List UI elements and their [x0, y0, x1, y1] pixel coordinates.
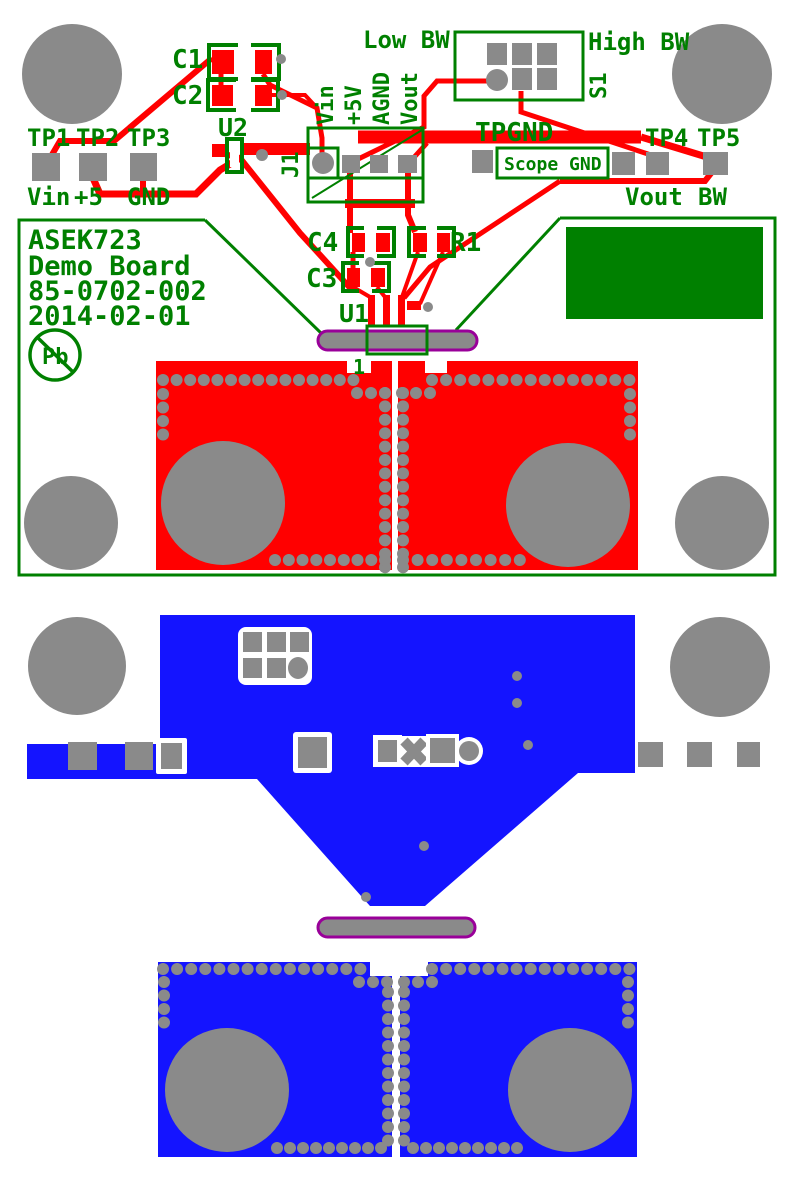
title-line4: 2014-02-01: [28, 301, 191, 332]
via-dot: [397, 534, 409, 546]
thermal-relief-pad: [399, 736, 429, 767]
via-dot: [398, 1013, 410, 1025]
via-dot: [539, 963, 551, 975]
via-dot: [362, 1142, 374, 1154]
via-dot: [398, 1067, 410, 1079]
pcb-layout-image: Scope GND: [0, 0, 795, 1185]
mount-hole-mid-left: [24, 476, 118, 570]
via-dot: [351, 387, 363, 399]
tp5-label: TP5: [697, 124, 740, 152]
via-dot: [482, 963, 494, 975]
via-dot: [497, 963, 509, 975]
via-dot: [609, 374, 621, 386]
via-dot: [157, 402, 169, 414]
via-dot: [426, 374, 438, 386]
via-dot: [283, 554, 295, 566]
via-dot: [624, 388, 636, 400]
via-dot: [312, 963, 324, 975]
pcb-drawing: Scope GND: [0, 0, 795, 1185]
u1-primary-slot: [318, 331, 477, 350]
via-dot: [382, 1094, 394, 1106]
j1-pad-3: [370, 155, 388, 173]
via-dot: [252, 374, 264, 386]
j1-label: J1: [279, 152, 304, 179]
via-dot: [185, 963, 197, 975]
vin-label: Vin: [27, 183, 70, 211]
via-dot: [379, 554, 391, 566]
via-dot: [323, 1142, 335, 1154]
via-dot: [397, 494, 409, 506]
via-dot: [623, 963, 635, 975]
via-dot: [459, 1142, 471, 1154]
via-dot: [397, 427, 409, 439]
via-dot: [213, 963, 225, 975]
via-dot: [354, 963, 366, 975]
bw-label: BW: [698, 183, 727, 211]
via-dot: [284, 963, 296, 975]
via-dot: [426, 963, 438, 975]
lead-free-pb-label: Pb: [42, 345, 69, 370]
component-u2: [212, 139, 242, 172]
c1-label: C1: [172, 45, 203, 75]
via-dot: [239, 374, 251, 386]
j1-pin2-name: +5V: [342, 85, 367, 125]
via-dot: [441, 554, 453, 566]
via-dot: [398, 1054, 410, 1066]
via-dot: [379, 414, 391, 426]
tpgnd-pad-left: [472, 150, 493, 173]
plus5-label: +5: [74, 183, 103, 211]
bottom-copper-pour-right: [398, 960, 637, 1157]
mount-hole-bottom-left: [28, 617, 126, 715]
solid-silkscreen-block: [566, 227, 763, 319]
via-dot: [398, 1027, 410, 1039]
via-dot: [525, 374, 537, 386]
j1-pin4-name: Vout: [398, 72, 423, 125]
via-dot: [379, 467, 391, 479]
scope-gnd-callout: Scope GND: [497, 148, 608, 178]
via-dot: [525, 963, 537, 975]
lead-free-icon: Pb: [30, 330, 80, 380]
via-dot: [228, 963, 240, 975]
via-dot: [157, 429, 169, 441]
bottom-copper-pour-left: [157, 960, 394, 1157]
via-dot: [225, 374, 237, 386]
u1-label: U1: [339, 299, 369, 328]
via-dot: [336, 1142, 348, 1154]
via-dot: [581, 963, 593, 975]
via-dot: [270, 963, 282, 975]
via-dot: [567, 963, 579, 975]
via-dot: [397, 554, 409, 566]
via-dot: [340, 963, 352, 975]
u1-pin1-label: 1: [353, 355, 365, 379]
via-dot: [334, 374, 346, 386]
via-dot: [379, 387, 391, 399]
via-dot: [397, 387, 409, 399]
via-dot: [365, 387, 377, 399]
via-dot: [511, 374, 523, 386]
via-dot: [433, 1142, 445, 1154]
tp1-pad: [32, 153, 60, 181]
via-dot: [242, 963, 254, 975]
via-dot: [420, 1142, 432, 1154]
via-dot: [310, 554, 322, 566]
via-dot: [412, 976, 424, 988]
via-dot: [382, 1121, 394, 1133]
j1-pad-4: [398, 155, 417, 173]
via-dot: [269, 554, 281, 566]
via-dot: [379, 454, 391, 466]
via-dot: [279, 374, 291, 386]
via-dot: [379, 508, 391, 520]
via-dot: [298, 963, 310, 975]
u2-label: U2: [218, 113, 248, 142]
tpgnd-pad-right: [612, 152, 635, 175]
via-dot: [454, 963, 466, 975]
via-dot: [482, 374, 494, 386]
mount-hole-top-left: [22, 24, 122, 124]
bottom-primary-slot: [318, 918, 475, 937]
via-dot: [410, 387, 422, 399]
via-dot: [367, 976, 379, 988]
via-dot: [382, 1000, 394, 1012]
via-dot: [407, 1142, 419, 1154]
component-r1: [409, 228, 454, 256]
via-dot: [379, 481, 391, 493]
via-dot: [398, 986, 410, 998]
via-dot: [158, 1003, 170, 1015]
via-dot: [349, 1142, 361, 1154]
high-bw-label: High BW: [588, 28, 690, 56]
via-dot: [297, 1142, 309, 1154]
via-dot: [379, 494, 391, 506]
via-dot: [171, 374, 183, 386]
tp1-label: TP1: [27, 124, 70, 152]
j1-pad-1: [312, 152, 334, 174]
via-dot: [352, 554, 364, 566]
via-dot: [468, 374, 480, 386]
via-dot: [440, 374, 452, 386]
via-dot: [446, 1142, 458, 1154]
via-dot: [379, 427, 391, 439]
via-dot: [424, 387, 436, 399]
tp2-pad: [79, 153, 107, 181]
top-copper-pour-right: [396, 359, 638, 573]
via-dot: [326, 963, 338, 975]
via-dot: [199, 963, 211, 975]
via-dot: [398, 1040, 410, 1052]
via-dot: [398, 1094, 410, 1106]
top-copper-pour-left: [156, 359, 392, 573]
via-dot: [622, 1003, 634, 1015]
via-dot: [623, 374, 635, 386]
via-dot: [595, 963, 607, 975]
via-dot: [426, 976, 438, 988]
tp2-label: TP2: [76, 124, 119, 152]
via-dot: [595, 374, 607, 386]
via-dot: [499, 554, 511, 566]
via-dot: [353, 976, 365, 988]
via-dot: [468, 963, 480, 975]
bottom-s1-cutout: [238, 627, 312, 685]
via-dot: [338, 554, 350, 566]
via-dot: [622, 990, 634, 1002]
via-dot: [470, 554, 482, 566]
via-dot: [382, 1108, 394, 1120]
via-dot: [158, 1017, 170, 1029]
via-dot: [320, 374, 332, 386]
via-dot: [256, 963, 268, 975]
via-dot: [455, 554, 467, 566]
via-dot: [184, 374, 196, 386]
tp3-pad: [130, 153, 157, 181]
scope-gnd-label: Scope GND: [504, 154, 602, 175]
via-dot: [567, 374, 579, 386]
mount-hole-bottom-right: [670, 617, 770, 717]
tp3-label: TP3: [127, 124, 170, 152]
via-dot: [379, 400, 391, 412]
via-dot: [426, 554, 438, 566]
via-dot: [158, 976, 170, 988]
mount-hole-mid-right: [675, 476, 769, 570]
via-dot: [624, 415, 636, 427]
top-board-view: Scope GND: [19, 24, 775, 575]
via-dot: [171, 963, 183, 975]
via-dot: [622, 976, 634, 988]
via-dot: [382, 986, 394, 998]
via-dot: [553, 374, 565, 386]
component-c1: [209, 45, 279, 79]
via-dot: [379, 441, 391, 453]
via-dot: [397, 467, 409, 479]
via-dot: [397, 414, 409, 426]
s1-label: S1: [587, 73, 612, 100]
via-dot: [379, 521, 391, 533]
tp4-label: TP4: [645, 124, 688, 152]
via-dot: [498, 1142, 510, 1154]
via-dot: [397, 521, 409, 533]
j1-pin1-name: Vin: [314, 85, 339, 125]
via-dot: [472, 1142, 484, 1154]
via-dot: [514, 554, 526, 566]
via-dot: [553, 963, 565, 975]
via-dot: [398, 1108, 410, 1120]
via-dot: [382, 1040, 394, 1052]
low-bw-label: Low BW: [363, 26, 450, 54]
c4-label: C4: [307, 228, 338, 258]
via-dot: [624, 402, 636, 414]
via-dot: [198, 374, 210, 386]
via-dot: [382, 1027, 394, 1039]
via-dot: [497, 374, 509, 386]
via-dot: [324, 554, 336, 566]
via-dot: [157, 963, 169, 975]
via-dot: [397, 400, 409, 412]
via-dot: [382, 1067, 394, 1079]
via-dot: [158, 990, 170, 1002]
vout-label: Vout: [625, 183, 683, 211]
via-dot: [440, 963, 452, 975]
via-dot: [397, 454, 409, 466]
via-dot: [157, 374, 169, 386]
via-dot: [397, 508, 409, 520]
via-dot: [284, 1142, 296, 1154]
via-dot: [293, 374, 305, 386]
via-dot: [539, 374, 551, 386]
via-dot: [454, 374, 466, 386]
via-dot: [382, 1013, 394, 1025]
via-dot: [485, 1142, 497, 1154]
via-dot: [266, 374, 278, 386]
tpgnd-label: TPGND: [475, 118, 553, 148]
via-dot: [365, 554, 377, 566]
via-dot: [511, 963, 523, 975]
via-dot: [624, 429, 636, 441]
title-block: ASEK723 Demo Board 85-0702-002 2014-02-0…: [28, 225, 207, 380]
via-dot: [398, 1000, 410, 1012]
via-dot: [379, 534, 391, 546]
via-dot: [398, 1121, 410, 1133]
via-dot: [397, 441, 409, 453]
tp4-pad: [646, 152, 669, 175]
via-dot: [382, 1081, 394, 1093]
via-dot: [398, 1081, 410, 1093]
via-dot: [382, 1054, 394, 1066]
via-dot: [397, 481, 409, 493]
component-c4: [348, 228, 394, 256]
via-dot: [307, 374, 319, 386]
via-dot: [157, 415, 169, 427]
via-dot: [375, 1142, 387, 1154]
via-dot: [609, 963, 621, 975]
via-dot: [581, 374, 593, 386]
bottom-board-view: [27, 615, 770, 1157]
via-dot: [297, 554, 309, 566]
gnd-label: GND: [127, 183, 170, 211]
via-dot: [271, 1142, 283, 1154]
j1-pin3-name: AGND: [370, 72, 395, 125]
via-dot: [157, 388, 169, 400]
c2-label: C2: [172, 81, 203, 111]
j1-pad-2: [342, 155, 360, 173]
via-dot: [211, 374, 223, 386]
via-dot: [485, 554, 497, 566]
via-dot: [511, 1142, 523, 1154]
component-c3: [343, 263, 389, 291]
component-s1: [455, 32, 583, 100]
via-dot: [310, 1142, 322, 1154]
r1-label: R1: [450, 228, 481, 258]
tp5-pad: [703, 152, 728, 175]
c3-label: C3: [306, 264, 337, 294]
via-dot: [412, 554, 424, 566]
via-dot: [622, 1017, 634, 1029]
